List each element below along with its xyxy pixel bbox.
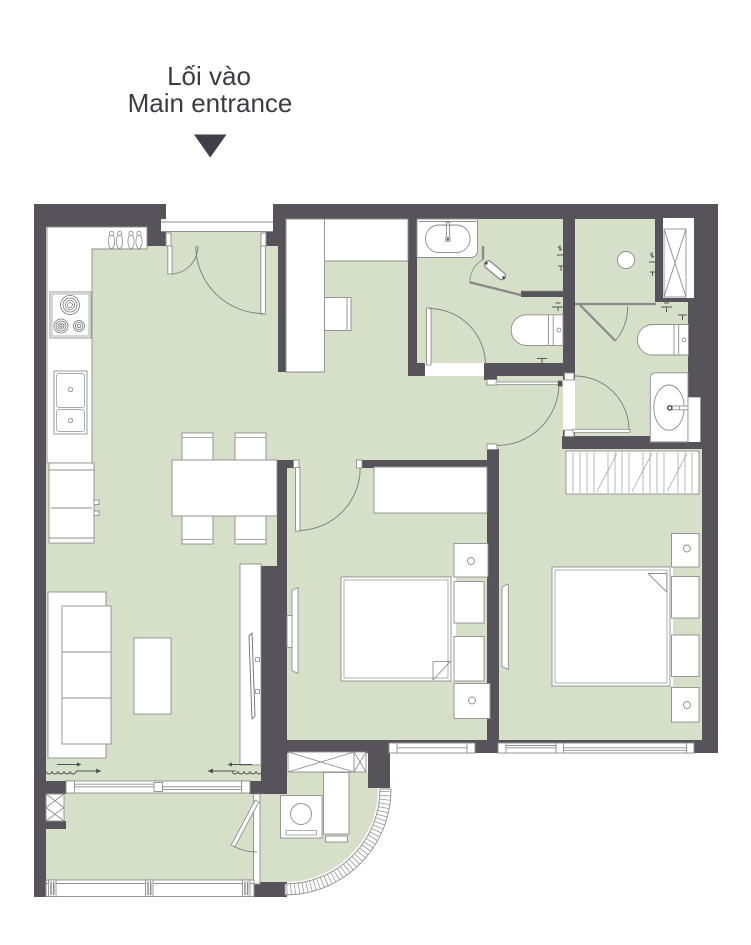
svg-text:Lối vào: Lối vào [167,61,251,91]
svg-text:Main entrance: Main entrance [128,88,293,118]
